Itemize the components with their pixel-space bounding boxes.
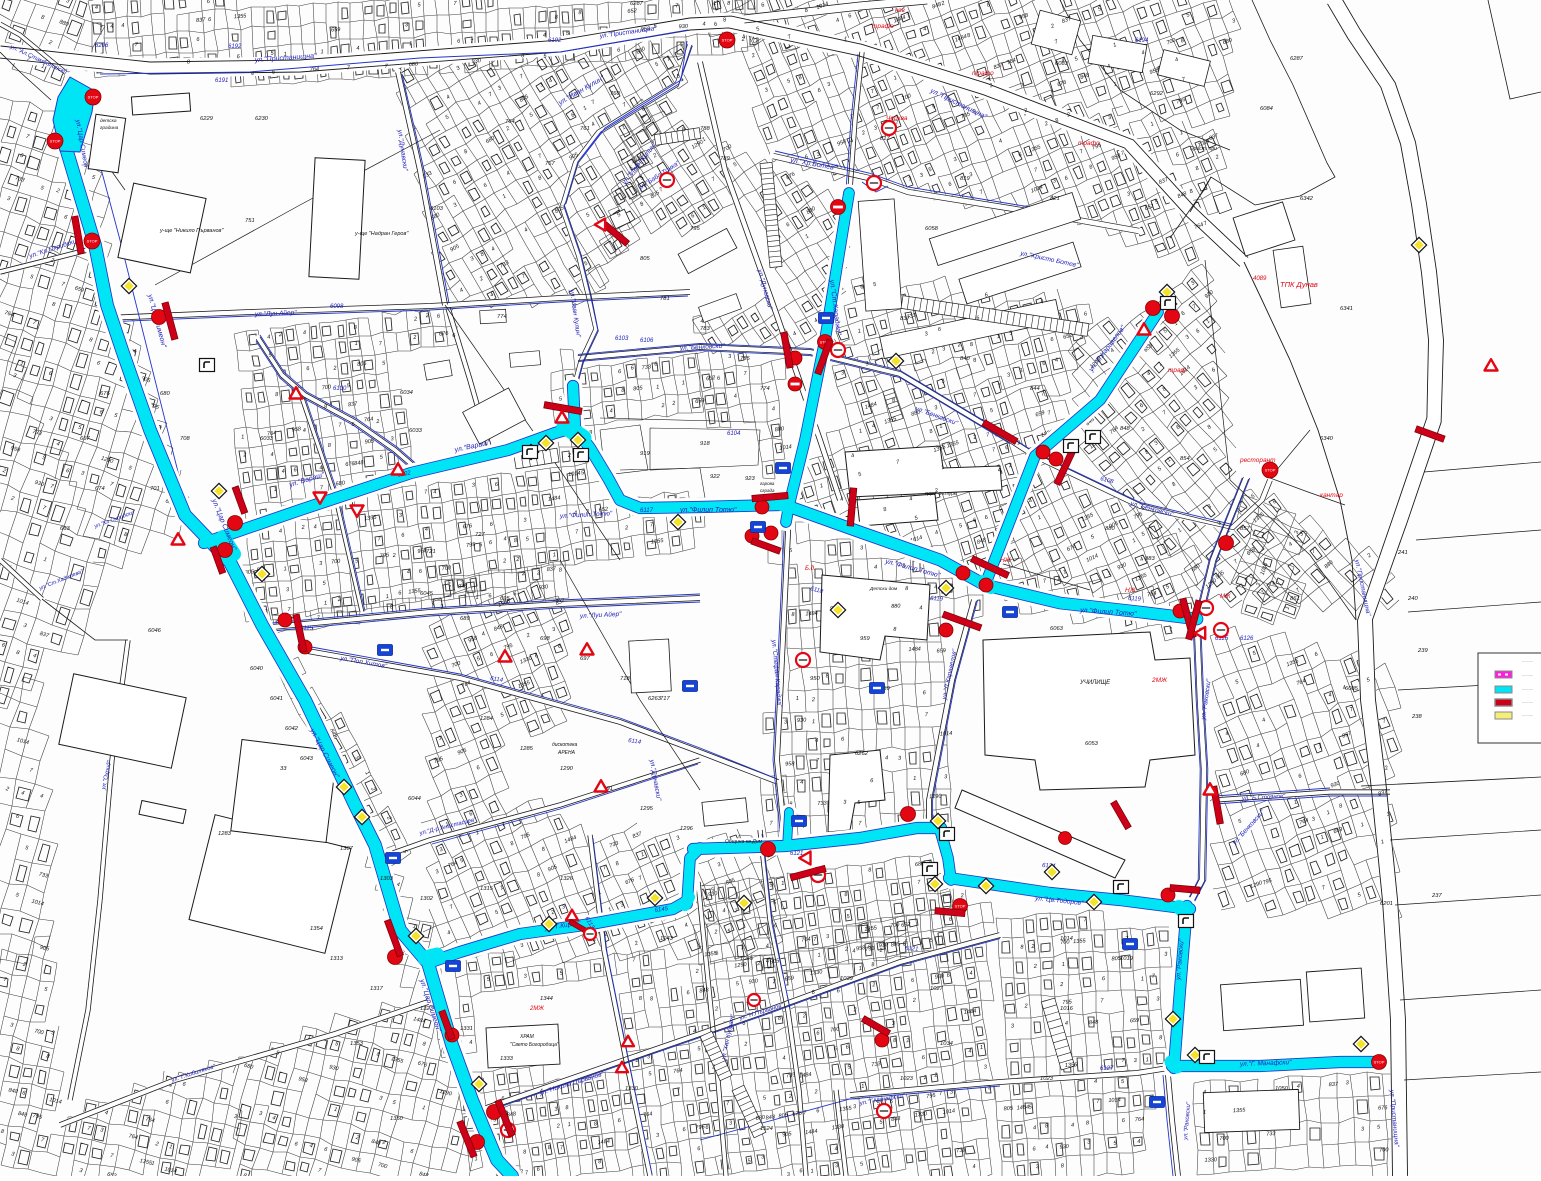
svg-text:6206: 6206 <box>95 43 109 49</box>
svg-text:4: 4 <box>1033 1125 1037 1131</box>
svg-text:гарова: гарова <box>760 481 775 486</box>
svg-text:880: 880 <box>1105 526 1115 532</box>
svg-text:689: 689 <box>460 616 470 622</box>
svg-text:6058: 6058 <box>925 226 939 232</box>
svg-text:4: 4 <box>1137 1139 1141 1145</box>
svg-text:33: 33 <box>280 766 287 772</box>
svg-text:НЖ: НЖ <box>1125 587 1137 594</box>
svg-text:..........: .......... <box>1522 658 1533 663</box>
svg-text:848: 848 <box>354 460 365 467</box>
svg-text:6229: 6229 <box>200 116 214 122</box>
svg-text:1: 1 <box>796 696 799 702</box>
svg-text:2МЖ: 2МЖ <box>1151 677 1168 684</box>
svg-text:ТПК Дунав: ТПК Дунав <box>1280 280 1318 289</box>
svg-text:1014: 1014 <box>940 731 953 738</box>
svg-text:1326: 1326 <box>560 876 574 882</box>
svg-text:1290: 1290 <box>560 766 574 772</box>
svg-text:6100: 6100 <box>333 386 347 392</box>
svg-text:у-ще "Никило Първанов": у-ще "Никило Първанов" <box>159 228 224 234</box>
svg-text:659: 659 <box>936 648 946 654</box>
svg-text:930: 930 <box>1059 1144 1070 1151</box>
svg-text:817: 817 <box>880 136 890 142</box>
svg-text:930: 930 <box>678 24 689 31</box>
svg-text:663: 663 <box>60 526 70 532</box>
svg-text:1355: 1355 <box>234 13 248 20</box>
svg-text:STOP: STOP <box>722 38 733 43</box>
svg-text:МЖ: МЖ <box>1220 594 1231 600</box>
svg-text:1016: 1016 <box>1060 1006 1074 1012</box>
svg-text:6084: 6084 <box>1260 106 1273 112</box>
svg-text:1350: 1350 <box>390 1116 404 1122</box>
svg-text:6053: 6053 <box>1085 741 1099 747</box>
svg-text:трафо: трафо <box>872 23 894 30</box>
svg-text:848: 848 <box>1089 1020 1100 1027</box>
svg-text:761: 761 <box>580 126 590 132</box>
svg-text:"Свето Богородица": "Свето Богородица" <box>510 1042 559 1048</box>
svg-text:6194: 6194 <box>1135 38 1149 44</box>
svg-text:Б.д.: Б.д. <box>805 566 816 572</box>
svg-text:1323: 1323 <box>420 1006 434 1012</box>
svg-text:840: 840 <box>960 356 970 362</box>
svg-text:1: 1 <box>812 719 815 725</box>
svg-text:6103: 6103 <box>430 206 444 212</box>
svg-text:6119: 6119 <box>1128 596 1142 603</box>
svg-text:1285: 1285 <box>520 746 534 752</box>
svg-text:805: 805 <box>633 385 644 392</box>
svg-text:4: 4 <box>356 46 360 52</box>
svg-text:..........: .......... <box>1522 672 1533 677</box>
svg-text:1290: 1290 <box>929 794 943 801</box>
svg-text:788: 788 <box>700 126 710 132</box>
svg-text:6034: 6034 <box>400 390 413 396</box>
svg-text:1317: 1317 <box>370 986 384 992</box>
svg-text:1023: 1023 <box>1040 1076 1054 1082</box>
svg-text:6046: 6046 <box>148 628 162 634</box>
svg-text:680: 680 <box>160 391 170 397</box>
svg-text:1: 1 <box>320 49 324 55</box>
svg-text:4: 4 <box>1203 1090 1206 1096</box>
svg-text:6287: 6287 <box>630 1 644 7</box>
svg-text:733: 733 <box>641 364 652 371</box>
svg-text:676: 676 <box>439 331 450 338</box>
svg-text:STOP: STOP <box>955 904 966 909</box>
svg-text:733: 733 <box>817 801 828 808</box>
svg-text:237: 237 <box>1431 893 1442 899</box>
svg-text:6098: 6098 <box>330 304 344 310</box>
svg-text:ул."Луи Айер": ул."Луи Айер" <box>254 309 298 319</box>
svg-text:717: 717 <box>660 696 670 702</box>
svg-text:837: 837 <box>546 566 557 573</box>
svg-text:1355: 1355 <box>1073 938 1087 945</box>
svg-text:1333: 1333 <box>500 1056 514 1062</box>
svg-text:1039: 1039 <box>840 976 854 982</box>
svg-text:680: 680 <box>408 62 419 69</box>
svg-text:траф: траф <box>1168 367 1187 374</box>
svg-text:905: 905 <box>364 438 375 445</box>
svg-text:1524: 1524 <box>760 1126 773 1132</box>
svg-text:1307: 1307 <box>340 846 354 852</box>
svg-text:STOP: STOP <box>87 239 98 244</box>
svg-text:4: 4 <box>251 71 255 77</box>
svg-text:1: 1 <box>1141 976 1145 982</box>
svg-text:659: 659 <box>1130 1018 1140 1025</box>
svg-text:6104: 6104 <box>727 431 741 437</box>
svg-text:Детски дом: Детски дом <box>869 586 898 592</box>
svg-text:1045: 1045 <box>740 956 754 962</box>
svg-text:1: 1 <box>1145 1057 1149 1063</box>
svg-text:6085: 6085 <box>1345 686 1359 692</box>
svg-text:764: 764 <box>364 416 374 423</box>
svg-text:958: 958 <box>785 761 796 768</box>
svg-text:1315: 1315 <box>480 886 494 892</box>
svg-text:STOP: STOP <box>1265 468 1276 473</box>
svg-text:781: 781 <box>660 296 670 302</box>
svg-text:1302: 1302 <box>420 896 434 902</box>
svg-text:1: 1 <box>409 41 413 47</box>
svg-text:930: 930 <box>471 58 482 65</box>
svg-text:795: 795 <box>379 552 390 559</box>
svg-text:трафо: трафо <box>1078 140 1100 147</box>
svg-text:238: 238 <box>1411 714 1422 720</box>
svg-text:1353: 1353 <box>350 1041 364 1047</box>
svg-text:6341: 6341 <box>1340 306 1353 312</box>
svg-text:883: 883 <box>1145 556 1155 562</box>
svg-text:6042: 6042 <box>285 726 299 732</box>
svg-text:700: 700 <box>1379 1147 1390 1154</box>
svg-text:821: 821 <box>1050 196 1060 202</box>
svg-text:674: 674 <box>95 486 105 492</box>
svg-text:922: 922 <box>710 474 720 480</box>
svg-text:1484: 1484 <box>805 611 818 618</box>
svg-text:805: 805 <box>357 361 368 368</box>
svg-text:1355: 1355 <box>1065 1062 1079 1069</box>
svg-text:кантар: кантар <box>1320 492 1343 499</box>
svg-text:930: 930 <box>538 584 549 591</box>
svg-text:6191: 6191 <box>215 78 228 84</box>
svg-text:6033: 6033 <box>409 428 423 434</box>
svg-text:РДВР-Фз.турм: РДВР-Фз.турм <box>925 491 957 496</box>
svg-text:6201: 6201 <box>1380 901 1393 907</box>
svg-text:6340: 6340 <box>1320 436 1334 442</box>
svg-text:1050: 1050 <box>1275 1086 1289 1092</box>
svg-text:4: 4 <box>815 738 818 744</box>
svg-text:727: 727 <box>475 532 485 538</box>
svg-text:6342: 6342 <box>1300 196 1314 202</box>
svg-text:4: 4 <box>1045 1144 1049 1150</box>
svg-text:837: 837 <box>900 316 910 322</box>
svg-text:764: 764 <box>505 119 515 125</box>
svg-text:6063: 6063 <box>1050 626 1064 632</box>
svg-text:1313: 1313 <box>330 956 344 962</box>
svg-text:695: 695 <box>500 596 510 602</box>
svg-text:789: 789 <box>720 156 730 162</box>
svg-text:1014: 1014 <box>1108 1097 1121 1104</box>
svg-text:2МЖ: 2МЖ <box>529 1006 544 1012</box>
svg-text:6192: 6192 <box>548 38 562 44</box>
svg-text:4: 4 <box>1094 1079 1098 1085</box>
svg-text:нов: нов <box>895 8 905 14</box>
svg-text:697: 697 <box>580 656 590 662</box>
svg-text:4: 4 <box>543 33 547 39</box>
svg-text:764: 764 <box>310 66 320 73</box>
svg-text:721: 721 <box>426 549 436 555</box>
svg-text:4: 4 <box>95 5 99 11</box>
svg-text:857: 857 <box>1240 526 1250 532</box>
svg-text:4: 4 <box>919 605 922 611</box>
svg-text:1019: 1019 <box>1120 956 1134 962</box>
svg-text:..........: .......... <box>1522 712 1533 717</box>
svg-text:652: 652 <box>627 8 638 15</box>
svg-text:1: 1 <box>713 1 717 7</box>
svg-text:6292: 6292 <box>1150 91 1164 97</box>
svg-text:785: 785 <box>740 356 750 362</box>
svg-text:1303: 1303 <box>380 876 394 882</box>
svg-text:923: 923 <box>745 476 755 482</box>
svg-text:6040: 6040 <box>250 666 264 672</box>
svg-text:1014: 1014 <box>1060 936 1073 942</box>
svg-text:6262: 6262 <box>855 751 869 757</box>
svg-text:733: 733 <box>1266 1131 1277 1138</box>
svg-text:676: 676 <box>1378 1105 1389 1112</box>
svg-text:805: 805 <box>640 256 650 262</box>
svg-text:239: 239 <box>1417 648 1428 654</box>
svg-text:4089: 4089 <box>1253 276 1267 282</box>
svg-text:700: 700 <box>321 384 332 391</box>
svg-text:детска: детска <box>100 118 117 124</box>
svg-text:659: 659 <box>331 27 341 34</box>
svg-text:6041: 6041 <box>270 696 283 702</box>
svg-text:708: 708 <box>180 436 190 442</box>
svg-text:698: 698 <box>540 636 550 642</box>
svg-text:6230: 6230 <box>255 116 269 122</box>
svg-text:240: 240 <box>1407 596 1418 602</box>
svg-text:АРЕНА: АРЕНА <box>557 750 576 756</box>
svg-text:950: 950 <box>810 676 820 682</box>
svg-text:959: 959 <box>860 636 870 642</box>
svg-text:837: 837 <box>196 17 207 24</box>
svg-text:767: 767 <box>545 161 555 167</box>
svg-text:6117: 6117 <box>640 508 654 514</box>
svg-text:1284: 1284 <box>480 716 493 722</box>
svg-text:774: 774 <box>497 314 507 320</box>
svg-text:6119: 6119 <box>930 596 944 603</box>
svg-text:..........: .......... <box>1522 686 1533 691</box>
svg-text:958: 958 <box>291 426 302 433</box>
svg-text:НЖ: НЖ <box>1000 557 1012 564</box>
svg-text:6121: 6121 <box>905 946 919 953</box>
svg-text:751: 751 <box>245 218 255 224</box>
svg-text:дискотека: дискотека <box>552 742 577 748</box>
svg-text:1330: 1330 <box>1204 1157 1218 1164</box>
svg-text:819: 819 <box>960 176 970 182</box>
svg-text:4: 4 <box>874 565 877 571</box>
svg-text:6103: 6103 <box>615 336 629 342</box>
svg-text:6045: 6045 <box>420 591 434 597</box>
svg-text:1296: 1296 <box>680 826 694 832</box>
svg-text:795: 795 <box>466 542 477 549</box>
svg-text:1484: 1484 <box>1016 1105 1029 1112</box>
svg-text:6192: 6192 <box>228 44 242 50</box>
svg-text:760: 760 <box>610 91 620 97</box>
svg-text:783: 783 <box>700 326 710 332</box>
svg-text:6033: 6033 <box>260 436 274 442</box>
svg-text:4: 4 <box>800 780 803 786</box>
svg-text:1023: 1023 <box>900 1076 914 1082</box>
svg-text:718: 718 <box>620 676 630 682</box>
svg-text:805: 805 <box>1004 1106 1015 1113</box>
svg-text:701: 701 <box>150 486 160 492</box>
svg-text:700: 700 <box>441 565 452 572</box>
svg-text:659: 659 <box>695 398 705 405</box>
svg-text:764: 764 <box>1135 1117 1145 1124</box>
svg-text:1: 1 <box>913 776 916 782</box>
svg-text:700: 700 <box>1219 1135 1230 1142</box>
svg-text:1034: 1034 <box>940 1041 953 1047</box>
svg-text:сграда: сграда <box>760 488 775 493</box>
svg-text:1283: 1283 <box>218 831 232 837</box>
svg-text:6126: 6126 <box>1240 636 1254 642</box>
svg-text:1: 1 <box>1062 962 1066 968</box>
svg-text:4: 4 <box>885 755 888 761</box>
svg-text:STOP: STOP <box>50 139 61 144</box>
svg-text:4: 4 <box>1065 1021 1069 1027</box>
svg-text:4: 4 <box>1297 1084 1300 1090</box>
svg-text:837: 837 <box>1329 1082 1340 1089</box>
svg-text:676: 676 <box>100 391 110 397</box>
svg-text:241: 241 <box>1397 550 1408 556</box>
svg-text:918: 918 <box>700 441 710 447</box>
svg-text:795: 795 <box>1062 999 1073 1006</box>
svg-text:6106: 6106 <box>640 338 654 344</box>
svg-text:676: 676 <box>462 523 473 530</box>
svg-text:795: 795 <box>690 226 700 232</box>
svg-text:6043: 6043 <box>300 756 314 762</box>
svg-text:6287: 6287 <box>1290 56 1304 62</box>
svg-text:6127: 6127 <box>1100 1066 1114 1072</box>
svg-text:4: 4 <box>934 584 937 590</box>
svg-text:6083: 6083 <box>1055 61 1069 67</box>
svg-text:1295: 1295 <box>640 806 654 812</box>
svg-text:1355: 1355 <box>1233 1108 1247 1115</box>
svg-text:667: 667 <box>80 436 90 442</box>
svg-text:1484: 1484 <box>908 646 921 653</box>
svg-text:трафо: трафо <box>972 70 994 77</box>
svg-text:ХРАМ: ХРАМ <box>519 1034 535 1040</box>
svg-text:1043: 1043 <box>660 936 674 942</box>
svg-text:4: 4 <box>702 21 706 27</box>
svg-text:1027: 1027 <box>930 986 944 992</box>
svg-text:градина: градина <box>100 125 119 131</box>
svg-text:700: 700 <box>331 558 342 565</box>
svg-text:1330: 1330 <box>625 1086 639 1092</box>
svg-text:880: 880 <box>891 603 902 610</box>
svg-text:4: 4 <box>110 24 114 30</box>
svg-text:Община-кв.Дим: Община-кв.Дим <box>725 839 763 845</box>
svg-text:STOP: STOP <box>88 95 99 100</box>
svg-text:919: 919 <box>640 451 650 457</box>
svg-text:844: 844 <box>1030 386 1040 392</box>
svg-text:6044: 6044 <box>408 796 421 802</box>
svg-text:у-ще "Надран Геров": у-ще "Надран Геров" <box>354 231 409 237</box>
svg-text:STOP: STOP <box>1374 1060 1385 1065</box>
svg-text:1: 1 <box>1203 1110 1206 1116</box>
svg-text:1344: 1344 <box>540 996 553 1002</box>
svg-text:861: 861 <box>1290 596 1300 602</box>
svg-text:Прист. при: Прист. при <box>1190 146 1217 152</box>
svg-text:..........: .......... <box>1522 699 1533 704</box>
svg-text:837: 837 <box>348 401 359 408</box>
svg-text:4: 4 <box>1071 1122 1075 1128</box>
svg-text:848: 848 <box>1120 426 1130 432</box>
svg-text:ул."Филип Тотю": ул."Филип Тотю" <box>679 507 737 514</box>
svg-text:930: 930 <box>797 717 808 724</box>
svg-text:1331: 1331 <box>460 1026 473 1032</box>
svg-text:4: 4 <box>121 23 125 29</box>
svg-text:1354: 1354 <box>310 926 323 932</box>
svg-text:854: 854 <box>1180 456 1190 462</box>
svg-text:УЧИЛИЩЕ: УЧИЛИЩЕ <box>1079 680 1111 686</box>
svg-text:774: 774 <box>760 386 770 392</box>
